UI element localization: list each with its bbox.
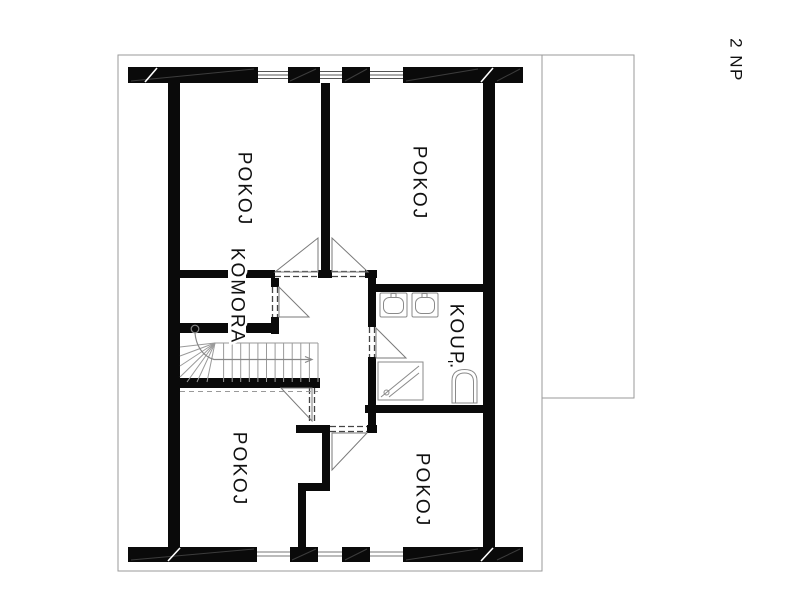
- room-label-komora: KOMORA: [227, 248, 248, 344]
- door-swing-icon: [332, 433, 367, 470]
- floor-title: 2 NP: [727, 38, 746, 82]
- room-label-pokoj-top-right: POKOJ: [409, 146, 430, 220]
- door-swing-icon: [275, 238, 318, 272]
- washbasin-icon: [380, 293, 407, 317]
- floor-plan-drawing: POKOJ POKOJ KOMORA KOUP. POKOJ POKOJ 2 N…: [0, 0, 800, 600]
- door-swing-icon: [332, 238, 368, 272]
- room-label-koupelna: KOUP.: [446, 304, 467, 371]
- door-swing-icon: [281, 388, 312, 421]
- room-labels: POKOJ POKOJ KOMORA KOUP. POKOJ POKOJ: [227, 146, 467, 527]
- shower-icon: [378, 362, 423, 400]
- floor-plan-canvas: POKOJ POKOJ KOMORA KOUP. POKOJ POKOJ 2 N…: [0, 0, 800, 600]
- room-label-pokoj-top-left: POKOJ: [234, 152, 255, 226]
- window-bottom-1: [257, 547, 290, 562]
- window-top-1: [258, 67, 288, 83]
- window-top-2: [320, 67, 342, 83]
- room-label-pokoj-bottom-left: POKOJ: [229, 432, 250, 506]
- door-swings: [275, 238, 406, 470]
- window-top-3: [370, 67, 403, 83]
- window-bottom-3: [370, 547, 403, 562]
- door-swing-icon: [279, 287, 309, 317]
- door-swing-icon: [376, 328, 406, 358]
- washbasin-icon: [412, 293, 438, 317]
- window-bottom-2: [318, 547, 342, 562]
- room-label-pokoj-bottom-right: POKOJ: [412, 453, 433, 527]
